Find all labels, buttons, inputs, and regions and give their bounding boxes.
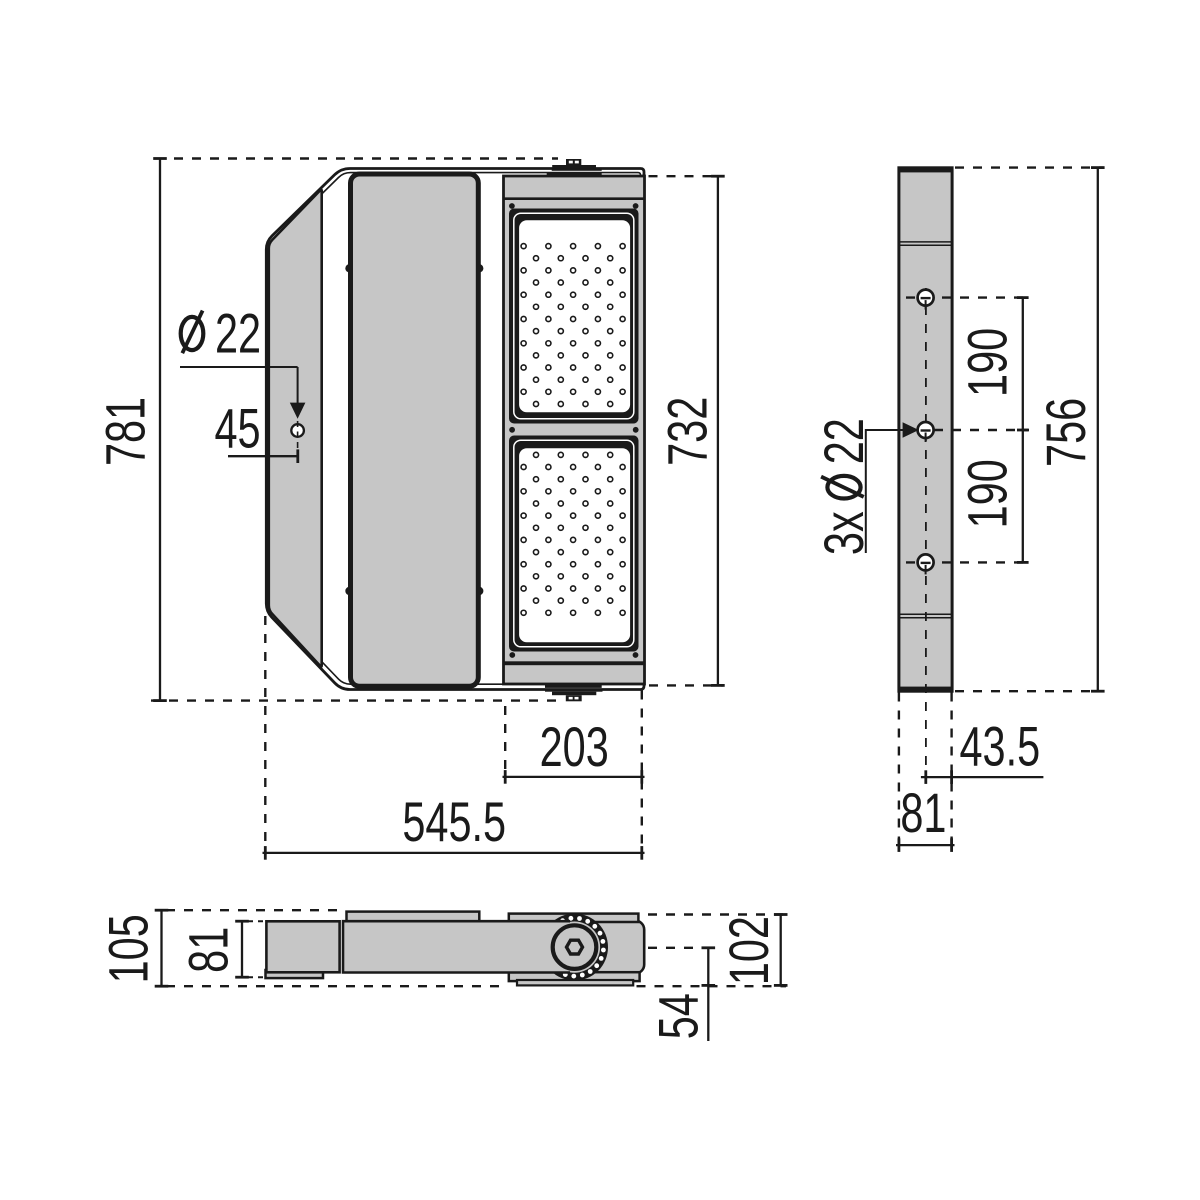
svg-text:22: 22 xyxy=(215,302,261,365)
svg-text:203: 203 xyxy=(540,716,609,779)
svg-text:732: 732 xyxy=(656,397,719,466)
svg-text:81: 81 xyxy=(177,927,240,973)
svg-text:190: 190 xyxy=(956,459,1019,528)
svg-text:43.5: 43.5 xyxy=(959,715,1040,778)
svg-text:81: 81 xyxy=(900,782,946,845)
svg-text:102: 102 xyxy=(718,916,781,985)
svg-text:45: 45 xyxy=(214,397,260,460)
svg-text:781: 781 xyxy=(95,397,158,466)
svg-text:105: 105 xyxy=(98,914,161,983)
svg-text:54: 54 xyxy=(647,993,710,1039)
svg-text:190: 190 xyxy=(956,328,1019,397)
svg-text:545.5: 545.5 xyxy=(402,791,506,854)
svg-text:756: 756 xyxy=(1035,398,1098,467)
